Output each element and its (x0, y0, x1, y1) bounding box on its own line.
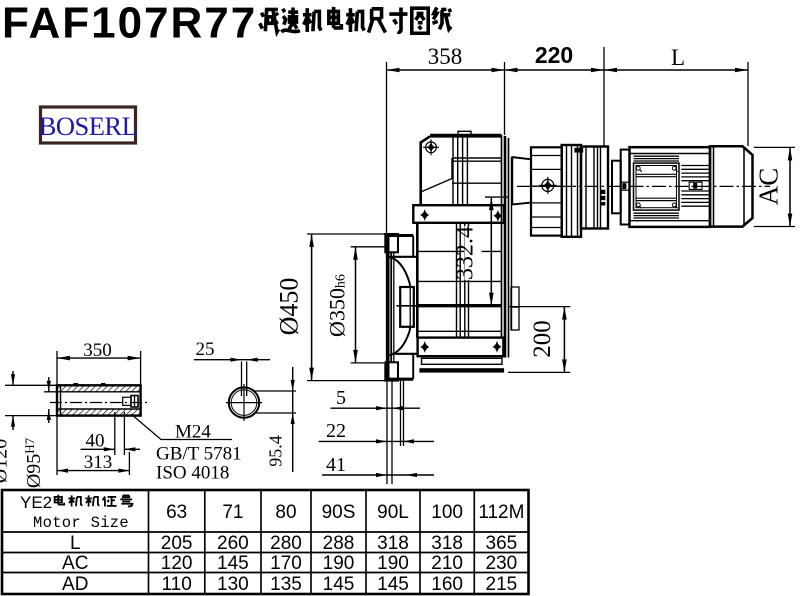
svg-text:350: 350 (83, 340, 112, 361)
svg-text:M24: M24 (175, 422, 211, 443)
svg-text:80: 80 (275, 502, 296, 523)
svg-text:288: 288 (323, 533, 355, 554)
svg-text:160: 160 (431, 574, 463, 595)
svg-text:Ø120: Ø120 (0, 439, 12, 483)
svg-text:Ø450: Ø450 (275, 278, 304, 336)
svg-text:260: 260 (217, 533, 249, 554)
svg-text:215: 215 (486, 574, 518, 595)
svg-text:41: 41 (326, 454, 346, 476)
svg-text:170: 170 (270, 553, 302, 574)
svg-text:ISO 4018: ISO 4018 (156, 463, 229, 484)
svg-text:220: 220 (535, 42, 573, 68)
svg-text:112M: 112M (478, 502, 524, 523)
svg-text:25: 25 (196, 339, 215, 360)
svg-text:22: 22 (326, 420, 346, 442)
svg-text:GB/T 5781: GB/T 5781 (156, 444, 242, 465)
svg-text:358: 358 (428, 44, 463, 69)
svg-text:90L: 90L (377, 502, 409, 523)
svg-text:71: 71 (222, 502, 243, 523)
svg-text:332.4: 332.4 (453, 226, 479, 280)
svg-text:190: 190 (323, 553, 355, 574)
svg-text:100: 100 (431, 502, 463, 523)
svg-text:318: 318 (431, 533, 463, 554)
svg-text:190: 190 (377, 553, 409, 574)
svg-text:BOSERL: BOSERL (39, 111, 138, 141)
svg-text:L: L (70, 533, 81, 554)
svg-text:130: 130 (217, 574, 249, 595)
svg-text:145: 145 (323, 574, 355, 595)
svg-text:365: 365 (486, 533, 518, 554)
svg-text:AC: AC (754, 168, 784, 206)
svg-text:AD: AD (62, 574, 88, 595)
svg-text:L: L (671, 45, 685, 70)
svg-text:200: 200 (529, 320, 556, 358)
svg-text:5: 5 (336, 387, 346, 409)
svg-text:280: 280 (270, 533, 302, 554)
svg-text:145: 145 (217, 553, 249, 574)
svg-text:120: 120 (161, 553, 193, 574)
svg-text:313: 313 (84, 452, 113, 473)
svg-text:63: 63 (166, 502, 187, 523)
svg-text:135: 135 (270, 574, 302, 595)
svg-text:95.4: 95.4 (266, 435, 286, 467)
svg-text:40: 40 (86, 431, 105, 452)
svg-text:210: 210 (431, 553, 463, 574)
svg-text:Motor Size: Motor Size (33, 514, 129, 532)
svg-text:145: 145 (377, 574, 409, 595)
svg-text:230: 230 (486, 553, 518, 574)
svg-text:90S: 90S (322, 502, 356, 523)
svg-text:205: 205 (161, 533, 193, 554)
svg-text:110: 110 (162, 574, 192, 595)
svg-text:FAF107R77: FAF107R77 (2, 0, 257, 48)
svg-text:318: 318 (377, 533, 409, 554)
svg-text:YE2: YE2 (20, 493, 52, 512)
svg-text:AC: AC (62, 553, 88, 574)
